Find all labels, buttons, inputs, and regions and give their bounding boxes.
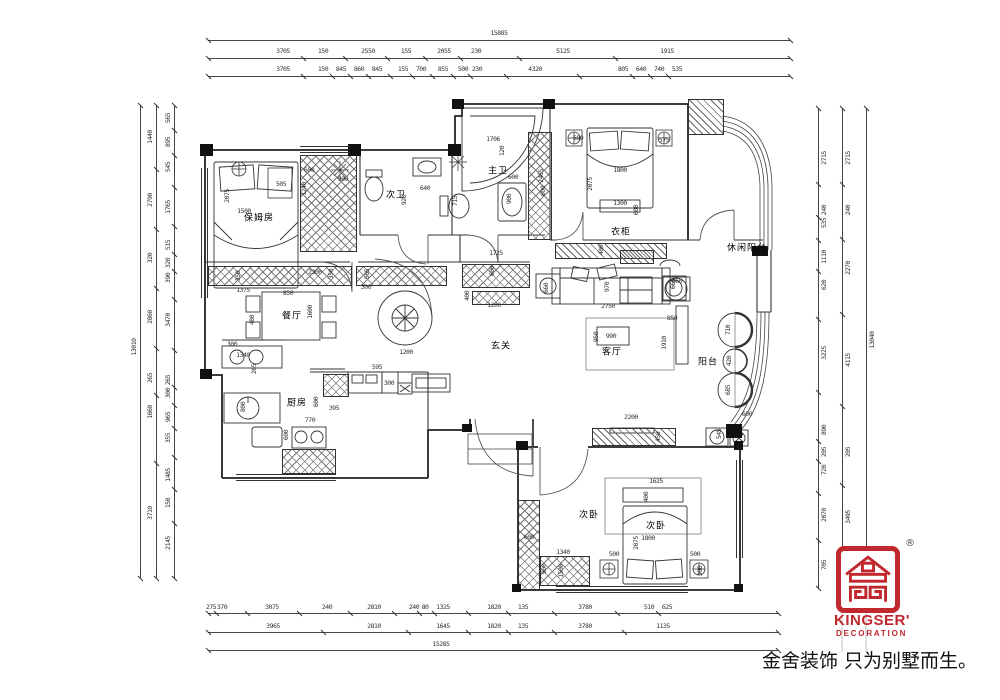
kingser-logo-glyph [841,551,895,608]
chain-dim-label: 855 [438,66,448,73]
pillar [516,441,528,450]
chain-dim-label: 3705 [276,66,290,73]
dim-label: 920 [401,195,408,205]
chain-dim-label: 2715 [821,151,828,165]
dim-label: 1240 [301,182,308,196]
dim-label: 715 [452,196,459,206]
room-label: 阳台 [698,359,718,368]
dim-label: 950 [593,332,600,342]
chain-dim-label: 2810 [367,604,381,611]
dim-label: 800 [240,402,247,412]
dim-label: 350 [328,269,335,279]
chain-dim-label: 1820 [487,623,501,630]
dim-label: 600 [508,174,518,181]
dim-label: 1500 [237,208,251,215]
chain-dim-label: 240 [322,604,332,611]
room-label: 次卧 [579,512,599,521]
chain-dim-label: 705 [821,560,828,570]
chain-dim-label: 320 [147,253,154,263]
registered-mark-icon: ® [905,538,915,549]
chain-dim-label: 890 [821,425,828,435]
dim-label: 900 [506,194,513,204]
dim-label: 600 [540,186,547,196]
dim-label: 1800 [641,535,655,542]
dim-label: 505 [276,181,286,188]
chain-dim-label: 390 [165,273,172,283]
chain-dim-label: 320 [165,258,172,268]
dim-label: 600 [633,205,640,215]
pillar [512,584,521,592]
chain-dim-label: 4320 [528,66,542,73]
dimension-chain-line [140,105,141,578]
dim-label: 600 [313,397,320,407]
pillar [452,99,464,109]
chain-dim-label: 845 [372,66,382,73]
dining-furniture [246,291,432,345]
chain-dim-label: 230 [471,48,481,55]
chain-dim-label: 3705 [276,48,290,55]
entry-cabinet [462,264,530,288]
chain-dim-label: 860 [354,66,364,73]
chain-dim-label: 1765 [165,200,172,214]
dim-label: 1200 [399,349,413,356]
room-label: 玄关 [491,343,511,352]
chain-dim-label: 240 [821,205,828,215]
dim-label: 1340 [236,352,250,359]
dim-label: 640 [420,185,430,192]
chain-dim-label: 620 [821,280,828,290]
dim-label: 600 [742,411,752,418]
chain-dim-label: 535 [672,66,682,73]
chain-dim-label: 895 [165,137,172,147]
dim-label: 600 [304,167,314,174]
dim-label: 300 [227,341,237,348]
dim-label: 350 [235,271,242,281]
room-label: 休闲阳台 [727,245,767,254]
dim-label: 1725 [489,250,503,257]
dim-label: 545 [716,429,723,439]
dim-label: 2200 [624,414,638,421]
chain-dim-label: 805 [618,66,628,73]
chain-dim-label: 700 [416,66,426,73]
chain-dim-label: 1915 [660,48,674,55]
chain-dim-label: 150 [318,48,328,55]
pillar [734,441,743,450]
kitchen-furniture [222,346,450,448]
chain-dim-label: 13040 [869,331,876,348]
chain-dim-label: 1110 [821,250,828,264]
dim-label: 2465 [538,169,545,183]
chain-dim-label: 845 [336,66,346,73]
chain-dim-label: 355 [165,433,172,443]
window [236,474,336,482]
chain-dim-label: 625 [662,604,672,611]
dim-label: 2300 [308,269,322,276]
dim-label: 600 [524,534,534,541]
chain-dim-label: 230 [472,66,482,73]
chain-dim-label: 275 [206,604,216,611]
chain-dim-label: 2270 [845,261,852,275]
dim-label: 400 [464,291,471,301]
dim-label: 300 [697,566,704,576]
dim-label: 990 [606,333,616,340]
dim-label: 300 [361,284,371,291]
dim-label: 480 [249,315,256,325]
chain-dim-label: 15885 [490,30,507,37]
dim-label: 660 [543,283,550,293]
dim-label: 900 [338,176,348,183]
dim-label: 970 [604,282,611,292]
dim-label: 600 [283,430,290,440]
logo-sub-text: DECORATION [836,629,907,638]
chain-dim-label: 205 [845,447,852,457]
room-label: 衣柜 [611,229,631,238]
chain-dim-label: 3965 [266,623,280,630]
dimension-chain-line [208,76,790,77]
chain-dim-label: 2070 [821,508,828,522]
room-label: 客厅 [602,349,622,358]
pillar [543,99,555,109]
room-label: 主卫 [488,168,508,177]
dim-label: 710 [725,325,732,335]
dim-label: 420 [726,356,733,366]
dimension-chain-line [208,40,790,41]
room-label: 保姆房 [244,215,274,224]
chain-dim-label: 3225 [821,346,828,360]
chain-dim-label: 2715 [845,151,852,165]
dim-label: 850 [283,290,293,297]
pillar [200,369,212,379]
chain-dim-label: 155 [401,48,411,55]
dim-label: 1200 [487,302,501,309]
dim-label: 1625 [649,478,663,485]
tv-cabinet [592,428,676,446]
dimension-chain-line [208,650,778,651]
chain-dim-label: 1660 [147,405,154,419]
door-arcs [322,210,734,495]
dim-label: 685 [725,385,732,395]
chain-dim-label: 535 [821,218,828,228]
pillar [448,144,461,156]
floorplan-page: ® KINGSER' DECORATION 金舍装饰 只为别墅而生。 保姆房次卫… [0,0,1000,700]
chain-dim-label: 545 [165,162,172,172]
chain-dim-label: 565 [165,113,172,123]
dim-label: 575 [659,137,669,144]
dim-label: 1600 [307,305,314,319]
chain-dim-label: 3780 [578,623,592,630]
chain-dim-label: 13010 [131,338,138,355]
dimension-chain-line [174,105,175,578]
chain-dim-label: 265 [165,375,172,385]
chain-dim-label: 640 [636,66,646,73]
chain-dim-label: 2790 [147,193,154,207]
chain-dim-label: 3470 [165,313,172,327]
dimension-chain-line [208,632,778,633]
dim-label: 1300 [613,200,627,207]
chain-dim-label: 135 [518,604,528,611]
dim-label: 1500 [558,564,565,578]
bay-windows [722,116,772,431]
pillar [726,424,742,438]
chain-dim-label: 2810 [367,623,381,630]
dim-label: 265 [251,364,258,374]
dim-label: 1800 [613,167,627,174]
bedroom2-wardrobe [518,500,540,590]
kitchen-base-cabinet [282,449,336,474]
window [201,168,209,298]
dim-label: 600 [489,266,496,276]
chain-dim-label: 15285 [432,641,449,648]
chain-dim-label: 370 [217,604,227,611]
chain-dim-label: 135 [518,623,528,630]
pillar [462,424,472,432]
logo-tagline: 金舍装饰 只为别墅而生。 [762,646,977,673]
balcony-planter [620,250,654,264]
chain-dim-label: 155 [398,66,408,73]
chain-dim-label: 265 [147,373,154,383]
chain-dim-label: 5125 [556,48,570,55]
chain-dim-label: 3075 [265,604,279,611]
window [736,460,744,558]
dim-label: 1375 [236,287,250,294]
chain-dim-label: 740 [654,66,664,73]
dim-label: 595 [372,364,382,371]
dimension-chain-line [208,58,790,59]
dimension-chain-line [156,105,157,578]
chain-dim-label: 1485 [165,468,172,482]
kitchen-fridge [323,374,349,397]
floorplan-canvas: ® KINGSER' DECORATION 金舍装饰 只为别墅而生。 保姆房次卫… [0,0,1000,700]
chain-dim-label: 150 [165,498,172,508]
dim-label: 1706 [486,136,500,143]
chain-dim-label: 3780 [578,604,592,611]
dimension-chain-line [208,613,778,614]
chain-dim-label: 510 [644,604,654,611]
dim-label: 450 [655,432,662,442]
dim-label: 680 [573,135,583,142]
logo-brand-text: KINGSER' [834,612,906,629]
dim-label: 2075 [633,536,640,550]
window [300,146,350,154]
chain-dim-label: 2055 [437,48,451,55]
dim-label: 850 [667,315,677,322]
chain-dim-label: 240 [409,604,419,611]
dim-label: 660 [672,278,682,285]
chain-dim-label: 1645 [436,623,450,630]
dim-label: 400 [598,245,605,255]
chain-dim-label: 500 [458,66,468,73]
dim-label: 2750 [601,303,615,310]
chain-dim-label: 2860 [147,310,154,324]
chain-dim-label: 965 [165,412,172,422]
dim-label: 120 [499,146,506,156]
chain-dim-label: 150 [318,66,328,73]
dim-label: 1910 [661,336,668,350]
chain-dim-label: 4115 [845,353,852,367]
room-label: 次卧 [646,523,666,532]
dim-label: 2075 [587,177,594,191]
dim-label: 1340 [556,549,570,556]
dim-label: 900 [541,564,548,574]
dim-label: 400 [643,492,650,502]
kingser-logo [836,546,900,613]
chain-dim-label: 1440 [147,130,154,144]
dim-label: 500 [609,551,619,558]
chain-dim-label: 720 [821,465,828,475]
chain-dim-label: 3710 [147,506,154,520]
chain-dim-label: 515 [165,240,172,250]
corner-pillar [688,99,724,135]
room-label: 餐厅 [282,313,302,322]
chain-dim-label: 205 [821,447,828,457]
dim-label: 770 [305,417,315,424]
chain-dim-label: 1325 [436,604,450,611]
chain-dim-label: 2145 [165,536,172,550]
window [556,586,688,594]
dim-label: 2075 [224,189,231,203]
chain-dim-label: 80 [422,604,429,611]
chain-dim-label: 3495 [845,510,852,524]
dim-label: 565 [364,269,371,279]
dim-label: 500 [690,551,700,558]
room-label: 厨房 [287,400,307,409]
chain-dim-label: 2550 [361,48,375,55]
chain-dim-label: 1135 [656,623,670,630]
pillar [734,584,743,592]
chain-dim-label: 300 [165,388,172,398]
chain-dim-label: 1820 [487,604,501,611]
chain-dim-label: 240 [845,205,852,215]
dim-label: 395 [329,405,339,412]
dim-label: 300 [384,380,394,387]
pillar [200,144,213,156]
